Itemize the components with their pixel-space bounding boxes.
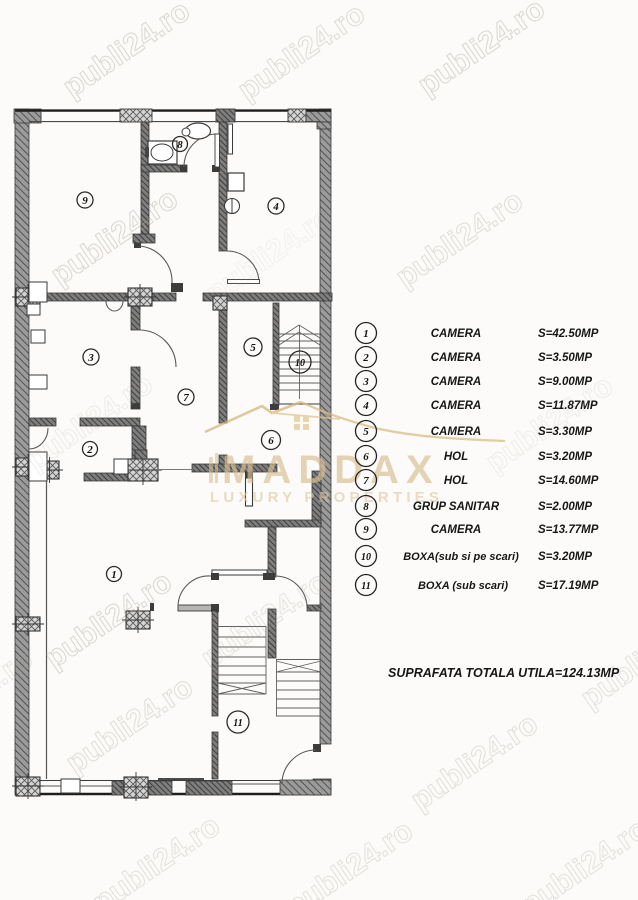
- svg-text:S=11.87MP: S=11.87MP: [538, 400, 598, 412]
- svg-text:8: 8: [363, 501, 369, 513]
- svg-text:BOXA(sub si pe scari): BOXA(sub si pe scari): [403, 551, 519, 563]
- svg-text:S=3.20MP: S=3.20MP: [538, 551, 592, 563]
- svg-text:SUPRAFATA TOTALA UTILA=124.13M: SUPRAFATA TOTALA UTILA=124.13MP: [388, 666, 620, 680]
- svg-text:S=3.30MP: S=3.30MP: [538, 426, 592, 438]
- svg-text:HOL: HOL: [444, 451, 468, 463]
- svg-text:10: 10: [361, 552, 371, 563]
- svg-text:7: 7: [363, 475, 369, 487]
- svg-text:S=3.20MP: S=3.20MP: [538, 451, 592, 463]
- svg-text:S=2.00MP: S=2.00MP: [538, 501, 592, 513]
- svg-text:HOL: HOL: [444, 475, 468, 487]
- svg-text:CAMERA: CAMERA: [431, 400, 481, 412]
- svg-text:S=42.50MP: S=42.50MP: [538, 328, 599, 340]
- svg-text:S=9.00MP: S=9.00MP: [538, 376, 592, 388]
- svg-text:CAMERA: CAMERA: [431, 352, 481, 364]
- svg-text:1: 1: [363, 328, 369, 340]
- svg-text:6: 6: [363, 451, 369, 463]
- svg-text:4: 4: [362, 400, 369, 412]
- svg-text:BOXA (sub scari): BOXA (sub scari): [418, 580, 508, 592]
- svg-text:S=3.50MP: S=3.50MP: [538, 352, 592, 364]
- svg-text:11: 11: [361, 581, 370, 592]
- svg-text:9: 9: [363, 524, 369, 536]
- svg-text:S=14.60MP: S=14.60MP: [538, 475, 599, 487]
- svg-text:2: 2: [362, 352, 369, 364]
- svg-text:CAMERA: CAMERA: [431, 328, 481, 340]
- svg-text:5: 5: [363, 426, 369, 438]
- svg-text:3: 3: [362, 376, 369, 388]
- svg-text:GRUP SANITAR: GRUP SANITAR: [413, 501, 500, 513]
- svg-text:S=13.77MP: S=13.77MP: [538, 524, 599, 536]
- svg-text:CAMERA: CAMERA: [431, 376, 481, 388]
- svg-text:CAMERA: CAMERA: [431, 524, 481, 536]
- svg-text:S=17.19MP: S=17.19MP: [538, 580, 599, 592]
- svg-text:CAMERA: CAMERA: [431, 426, 481, 438]
